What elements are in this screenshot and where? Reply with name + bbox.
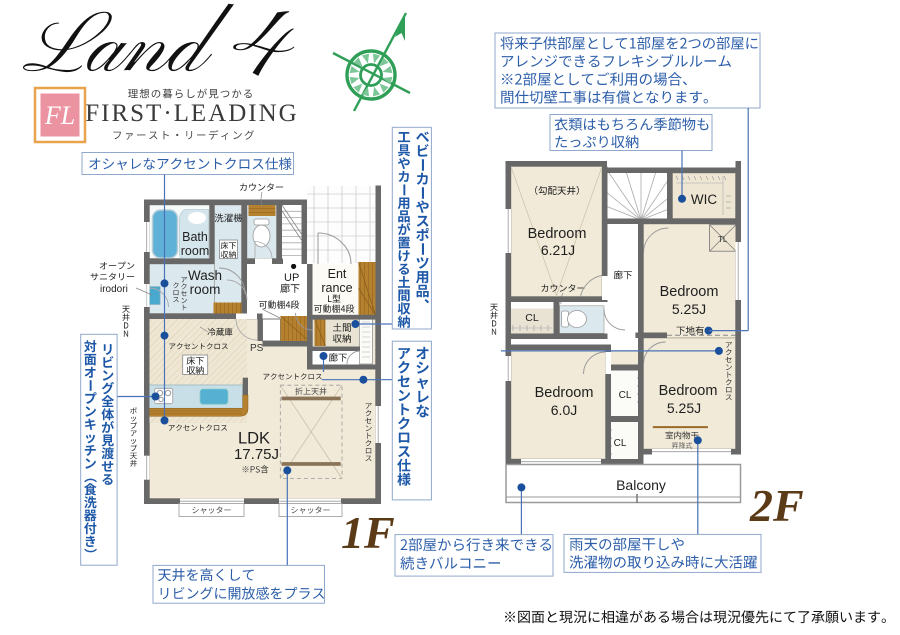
svg-text:CL: CL	[525, 312, 539, 324]
svg-text:6.0J: 6.0J	[551, 402, 577, 418]
svg-text:Bedroom: Bedroom	[528, 226, 587, 242]
svg-text:WIC: WIC	[691, 192, 717, 207]
svg-text:5.25J: 5.25J	[672, 301, 706, 317]
svg-text:Bedroom: Bedroom	[660, 284, 719, 300]
svg-text:Bedroom: Bedroom	[659, 383, 718, 399]
svg-text:UP: UP	[284, 272, 299, 284]
svg-text:LDK: LDK	[238, 430, 270, 448]
svg-text:room: room	[190, 282, 221, 297]
svg-text:1F: 1F	[341, 507, 395, 558]
svg-text:irodori: irodori	[100, 284, 128, 295]
svg-text:PS: PS	[250, 343, 264, 354]
svg-text:6.21J: 6.21J	[541, 242, 575, 258]
svg-text:2F: 2F	[749, 480, 804, 531]
svg-text:Balcony: Balcony	[616, 477, 666, 493]
svg-text:Wash: Wash	[188, 268, 222, 283]
svg-text:CL: CL	[614, 438, 627, 449]
svg-text:5.25J: 5.25J	[667, 400, 701, 416]
svg-text:Bath: Bath	[182, 230, 208, 244]
svg-text:CL: CL	[619, 390, 632, 401]
svg-text:TL: TL	[718, 235, 728, 244]
svg-text:FL: FL	[44, 101, 75, 130]
svg-text:Ent: Ent	[328, 267, 347, 281]
svg-text:Bedroom: Bedroom	[535, 385, 594, 401]
svg-text:17.75J: 17.75J	[234, 446, 279, 463]
svg-text:room: room	[181, 244, 209, 258]
svg-text:rance: rance	[321, 281, 352, 295]
svg-text:FIRST·LEADING: FIRST·LEADING	[85, 100, 299, 127]
